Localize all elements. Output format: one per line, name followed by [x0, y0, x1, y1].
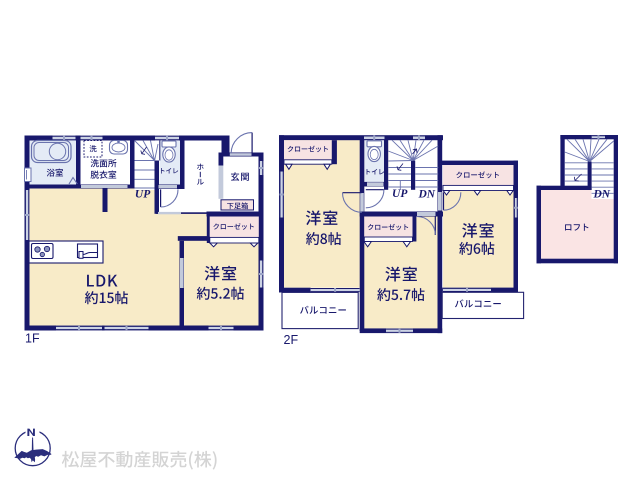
- svg-text:UP: UP: [392, 188, 408, 200]
- svg-text:DN: DN: [592, 189, 610, 201]
- svg-text:UP: UP: [135, 188, 151, 200]
- svg-text:2F: 2F: [284, 333, 299, 347]
- svg-text:1F: 1F: [25, 332, 40, 346]
- svg-text:DN: DN: [417, 188, 435, 200]
